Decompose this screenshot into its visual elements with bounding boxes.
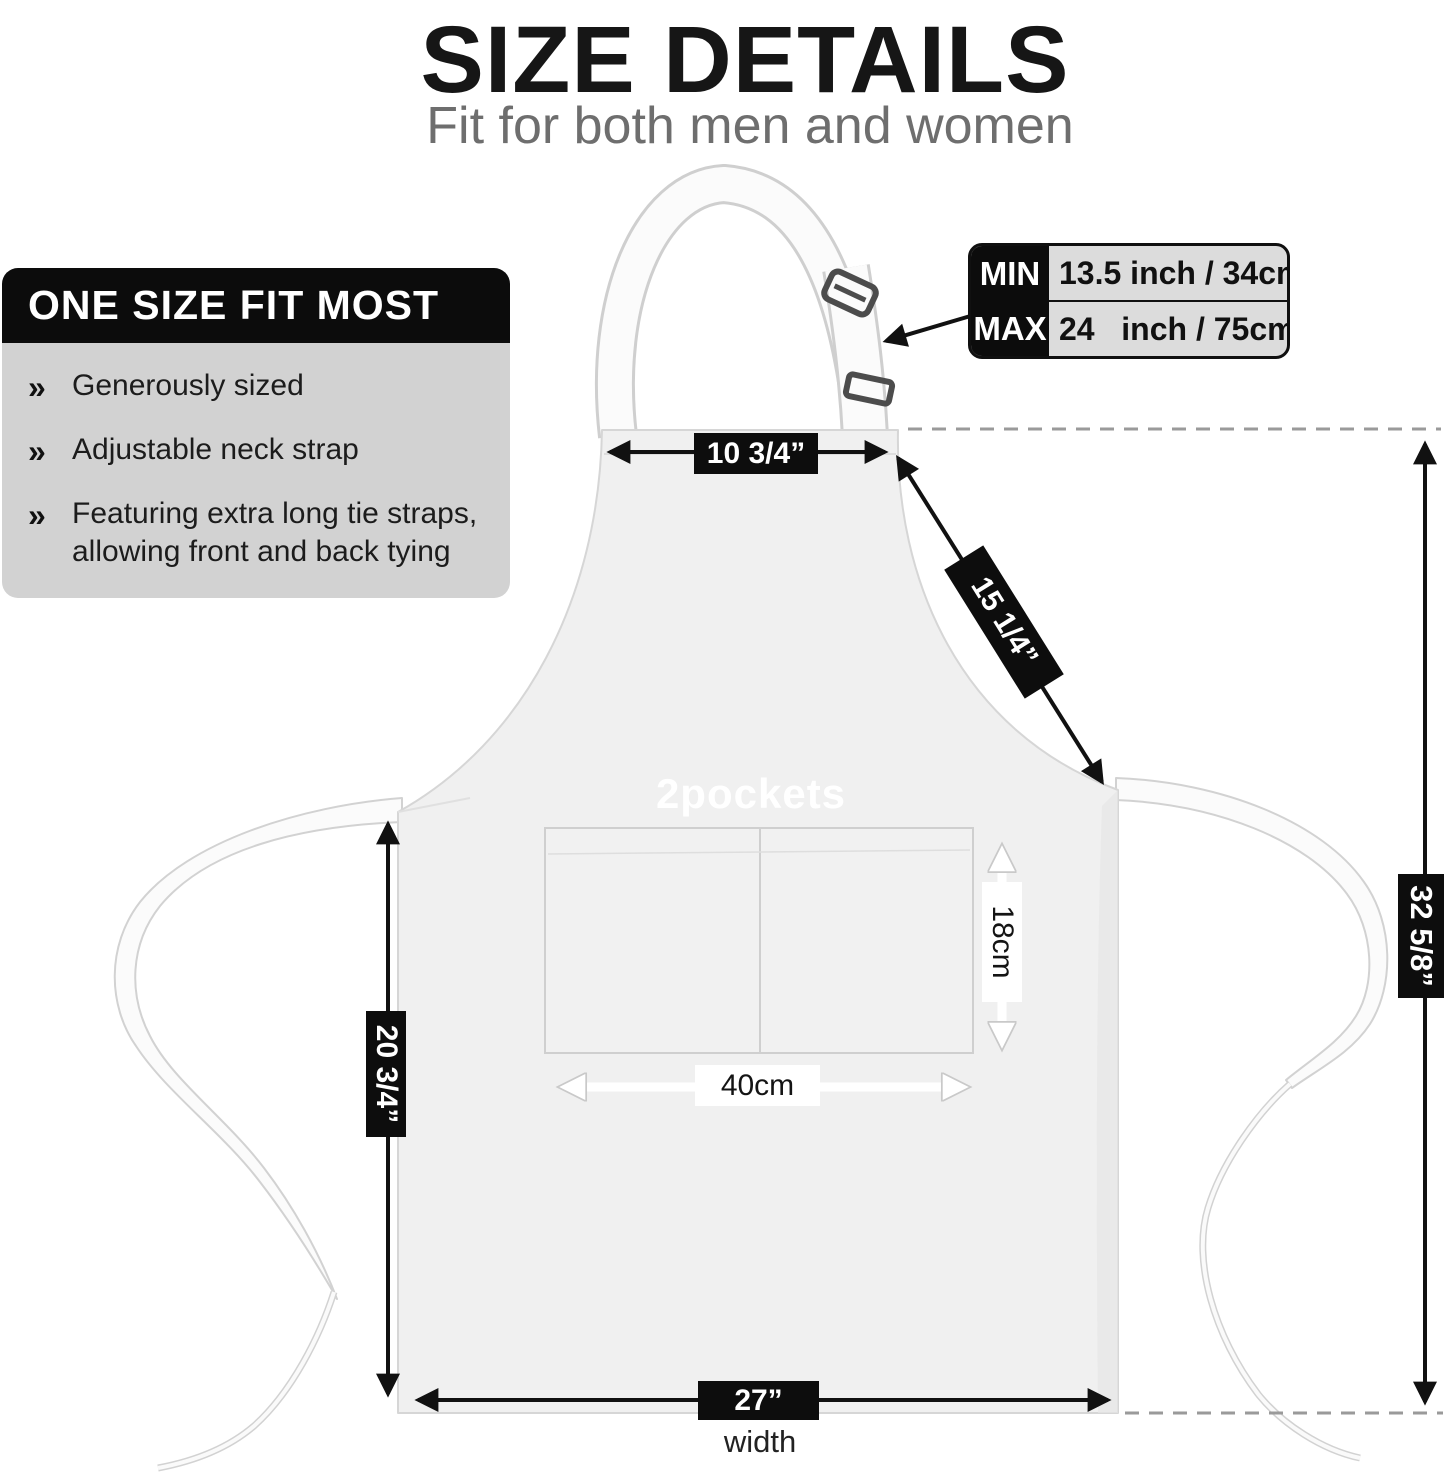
pocket-width-label: 40cm: [695, 1065, 820, 1106]
right-tie-strap: [1116, 778, 1387, 1458]
feature-item: » Generously sized: [28, 367, 496, 407]
pocket-height-label: 18cm: [982, 882, 1022, 1002]
neck-strap-minmax-table: MIN MAX 13.5 inch / 34cm 24 inch / 75cm: [968, 243, 1290, 359]
min-label: MIN: [971, 246, 1049, 301]
max-value: 24 inch / 75cm: [1049, 300, 1290, 356]
left-tie-strap: [115, 798, 402, 1468]
chevron-bullet-icon: »: [28, 367, 72, 407]
features-panel: ONE SIZE FIT MOST » Generously sized » A…: [2, 268, 510, 598]
feature-text: Generously sized: [72, 367, 304, 407]
size-details-infographic: SIZE DETAILS Fit for both men and women …: [0, 0, 1445, 1475]
minmax-value-column: 13.5 inch / 34cm 24 inch / 75cm: [1049, 246, 1290, 356]
skirt-height-label: 20 3/4”: [366, 1011, 406, 1137]
minmax-label-column: MIN MAX: [971, 246, 1049, 356]
bottom-width-caption: width: [690, 1424, 830, 1460]
apron-diagram: [0, 0, 1445, 1475]
chevron-bullet-icon: »: [28, 431, 72, 471]
neck-opening-width-label: 10 3/4”: [694, 433, 818, 474]
feature-item: » Adjustable neck strap: [28, 431, 496, 471]
feature-item: » Featuring extra long tie straps, allow…: [28, 495, 496, 570]
page-subtitle: Fit for both men and women: [0, 96, 1445, 156]
bottom-width-label: 27”: [698, 1381, 819, 1420]
max-label: MAX: [971, 301, 1049, 356]
features-panel-body: » Generously sized » Adjustable neck str…: [2, 343, 510, 598]
min-value: 13.5 inch / 34cm: [1049, 246, 1290, 300]
front-pocket: [545, 828, 973, 1053]
feature-text: Featuring extra long tie straps, allowin…: [72, 495, 496, 570]
chevron-bullet-icon: »: [28, 495, 72, 570]
features-panel-header: ONE SIZE FIT MOST: [2, 268, 510, 343]
pockets-print-text: 2pockets: [640, 770, 862, 818]
feature-text: Adjustable neck strap: [72, 431, 359, 471]
neck-strap: [615, 184, 865, 436]
right-edge-shading: [1097, 790, 1118, 1413]
total-height-label: 32 5/8”: [1398, 874, 1444, 998]
